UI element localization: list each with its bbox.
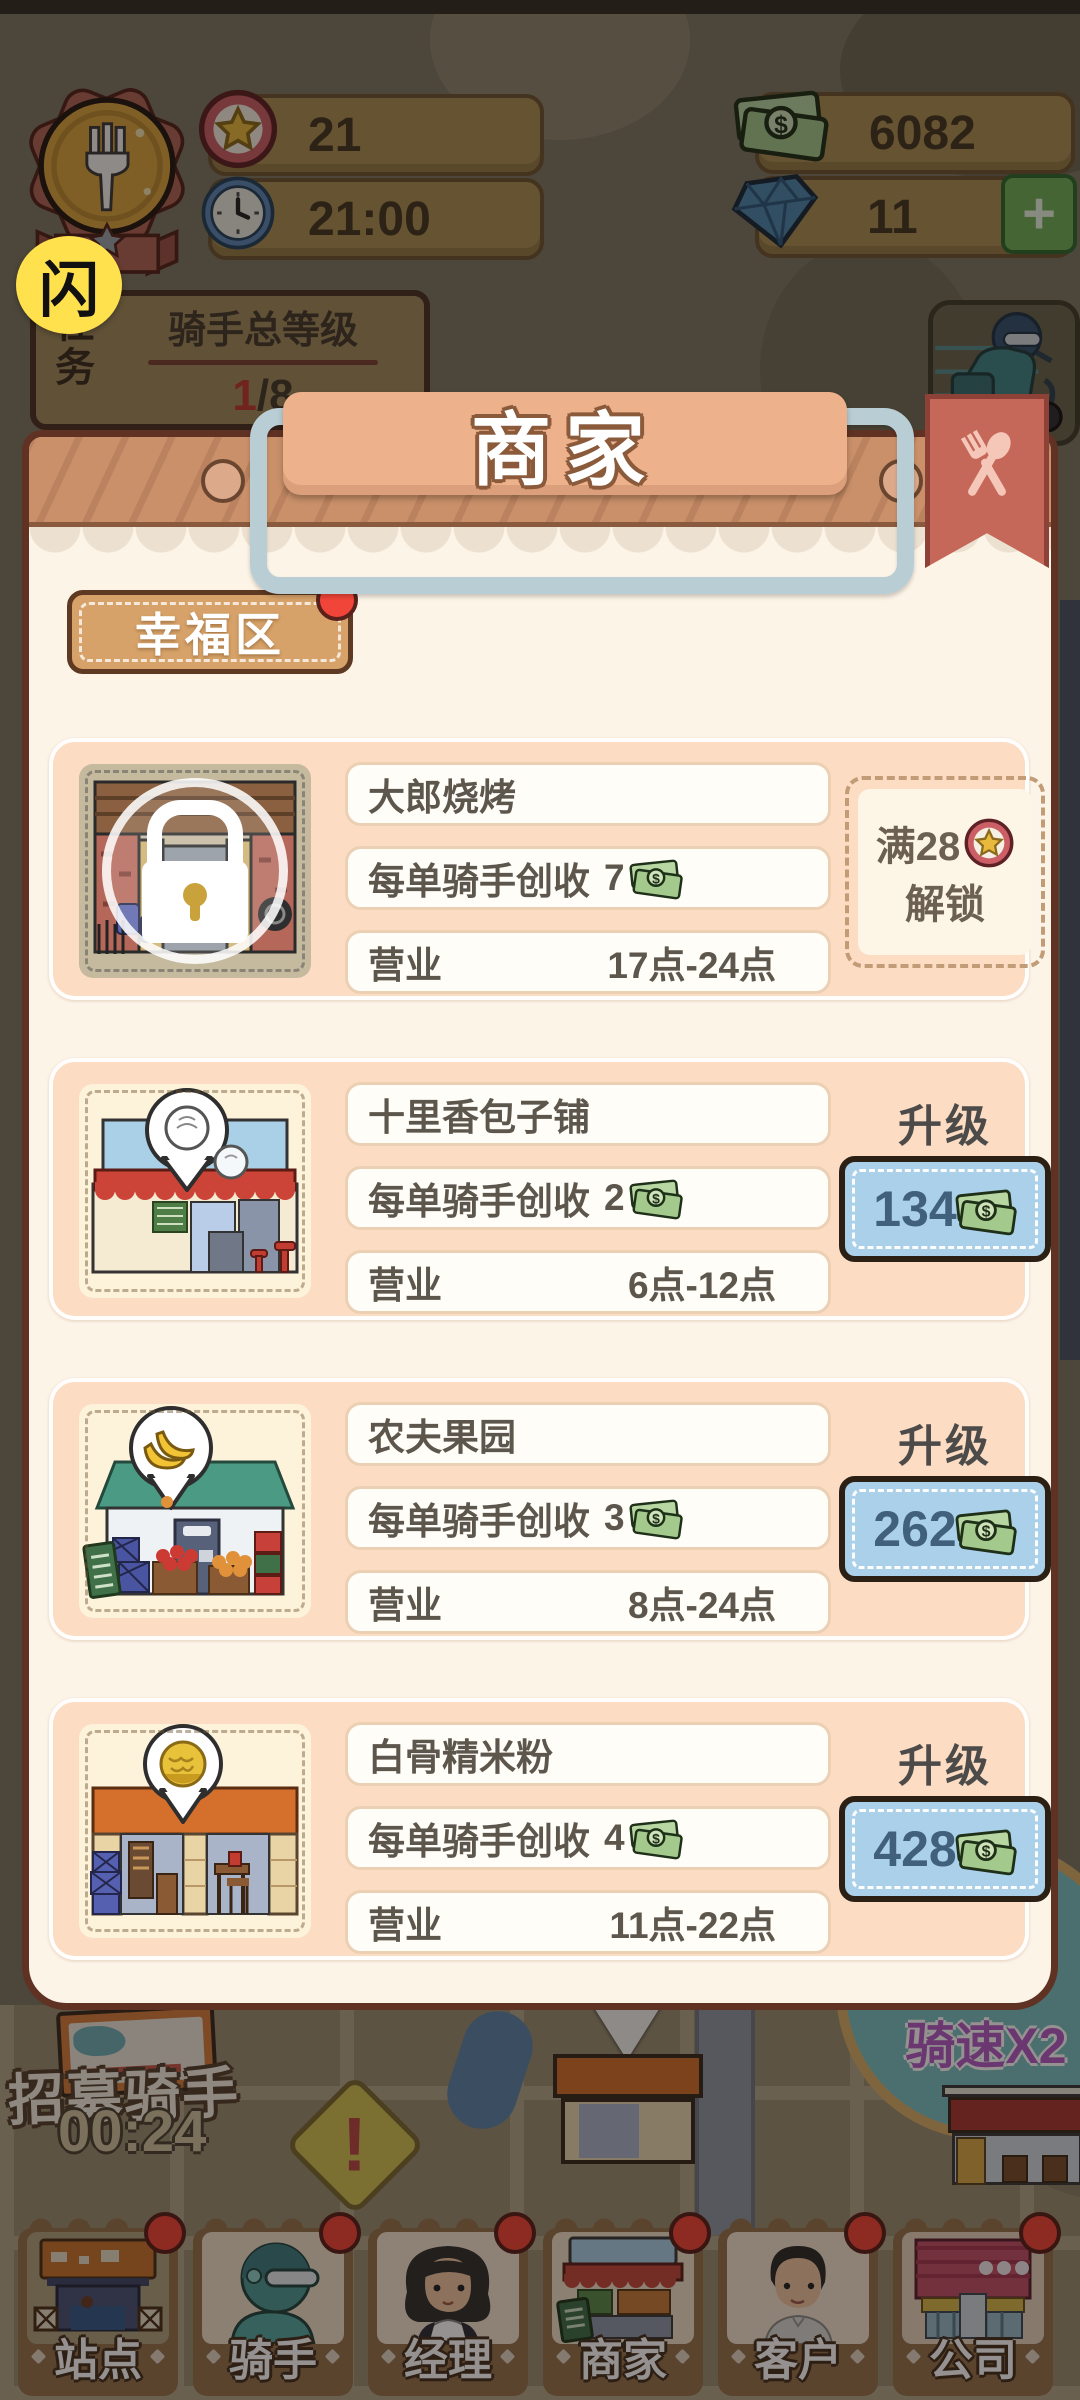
- merchant-hours-box: 营业8点-24点: [345, 1570, 831, 1634]
- merchants-modal: 幸福区: [22, 430, 1058, 2010]
- merchant-hours-box: 营业6点-12点: [345, 1250, 831, 1314]
- upgrade-label: 升级: [839, 1090, 1051, 1154]
- merchant-income-box: 每单骑手创收7: [345, 846, 831, 910]
- merchant-thumbnail: [79, 1084, 311, 1298]
- upgrade-label: 升级: [839, 1730, 1051, 1794]
- merchant-card[interactable]: 白骨精米粉 每单骑手创收4 营业11点-22点 升级 428: [49, 1698, 1029, 1960]
- screw-icon: [201, 459, 245, 503]
- merchant-name-box: 白骨精米粉: [345, 1722, 831, 1786]
- merchant-name-box: 大郎烧烤: [345, 762, 831, 826]
- game-screen: 招募骑手 00:24 ! 长按 骑速X2: [0, 0, 1080, 2400]
- money-bill-icon: [955, 1828, 1017, 1878]
- merchant-card[interactable]: 大郎烧烤 每单骑手创收7 营业17点-24点 满28 解锁: [49, 738, 1029, 1000]
- merchant-thumbnail: [79, 1724, 311, 1938]
- lock-icon: [79, 764, 311, 978]
- merchant-card[interactable]: 十里香包子铺 每单骑手创收2 营业6点-12点 升级 134: [49, 1058, 1029, 1320]
- pin-bun: [147, 1090, 247, 1190]
- pin-noodles: [145, 1726, 221, 1822]
- money-bill-icon: [629, 1179, 683, 1221]
- upgrade-button[interactable]: 428: [839, 1796, 1051, 1902]
- merchant-thumbnail-locked: [79, 764, 311, 978]
- merchant-name-box: 农夫果园: [345, 1402, 831, 1466]
- upgrade-button[interactable]: 262: [839, 1476, 1051, 1582]
- merchant-income-box: 每单骑手创收3: [345, 1486, 831, 1550]
- unlock-requirement-box: 满28 解锁: [845, 776, 1045, 968]
- merchant-card[interactable]: 农夫果园 每单骑手创收3 营业8点-24点 升级 262: [49, 1378, 1029, 1640]
- merchant-hours-box: 营业17点-24点: [345, 930, 831, 994]
- money-bill-icon: [629, 1819, 683, 1861]
- district-tab-xingfu[interactable]: 幸福区: [67, 590, 353, 674]
- money-bill-icon: [955, 1188, 1017, 1238]
- modal-title-plate: 商家: [283, 392, 847, 495]
- merchant-income-box: 每单骑手创收2: [345, 1166, 831, 1230]
- pin-banana: [131, 1408, 211, 1508]
- merchant-thumbnail: [79, 1404, 311, 1618]
- money-bill-icon: [629, 859, 683, 901]
- merchant-name-box: 十里香包子铺: [345, 1082, 831, 1146]
- upgrade-button[interactable]: 134: [839, 1156, 1051, 1262]
- merchant-income-box: 每单骑手创收4: [345, 1806, 831, 1870]
- money-bill-icon: [629, 1499, 683, 1541]
- upgrade-label: 升级: [839, 1410, 1051, 1474]
- modal-title: 商家: [471, 386, 659, 502]
- crossed-utensils-icon: [948, 427, 1026, 505]
- flash-ad-badge[interactable]: 闪: [16, 236, 122, 334]
- star-rosette-icon: [964, 818, 1014, 868]
- money-bill-icon: [955, 1508, 1017, 1558]
- merchant-hours-box: 营业11点-22点: [345, 1890, 831, 1954]
